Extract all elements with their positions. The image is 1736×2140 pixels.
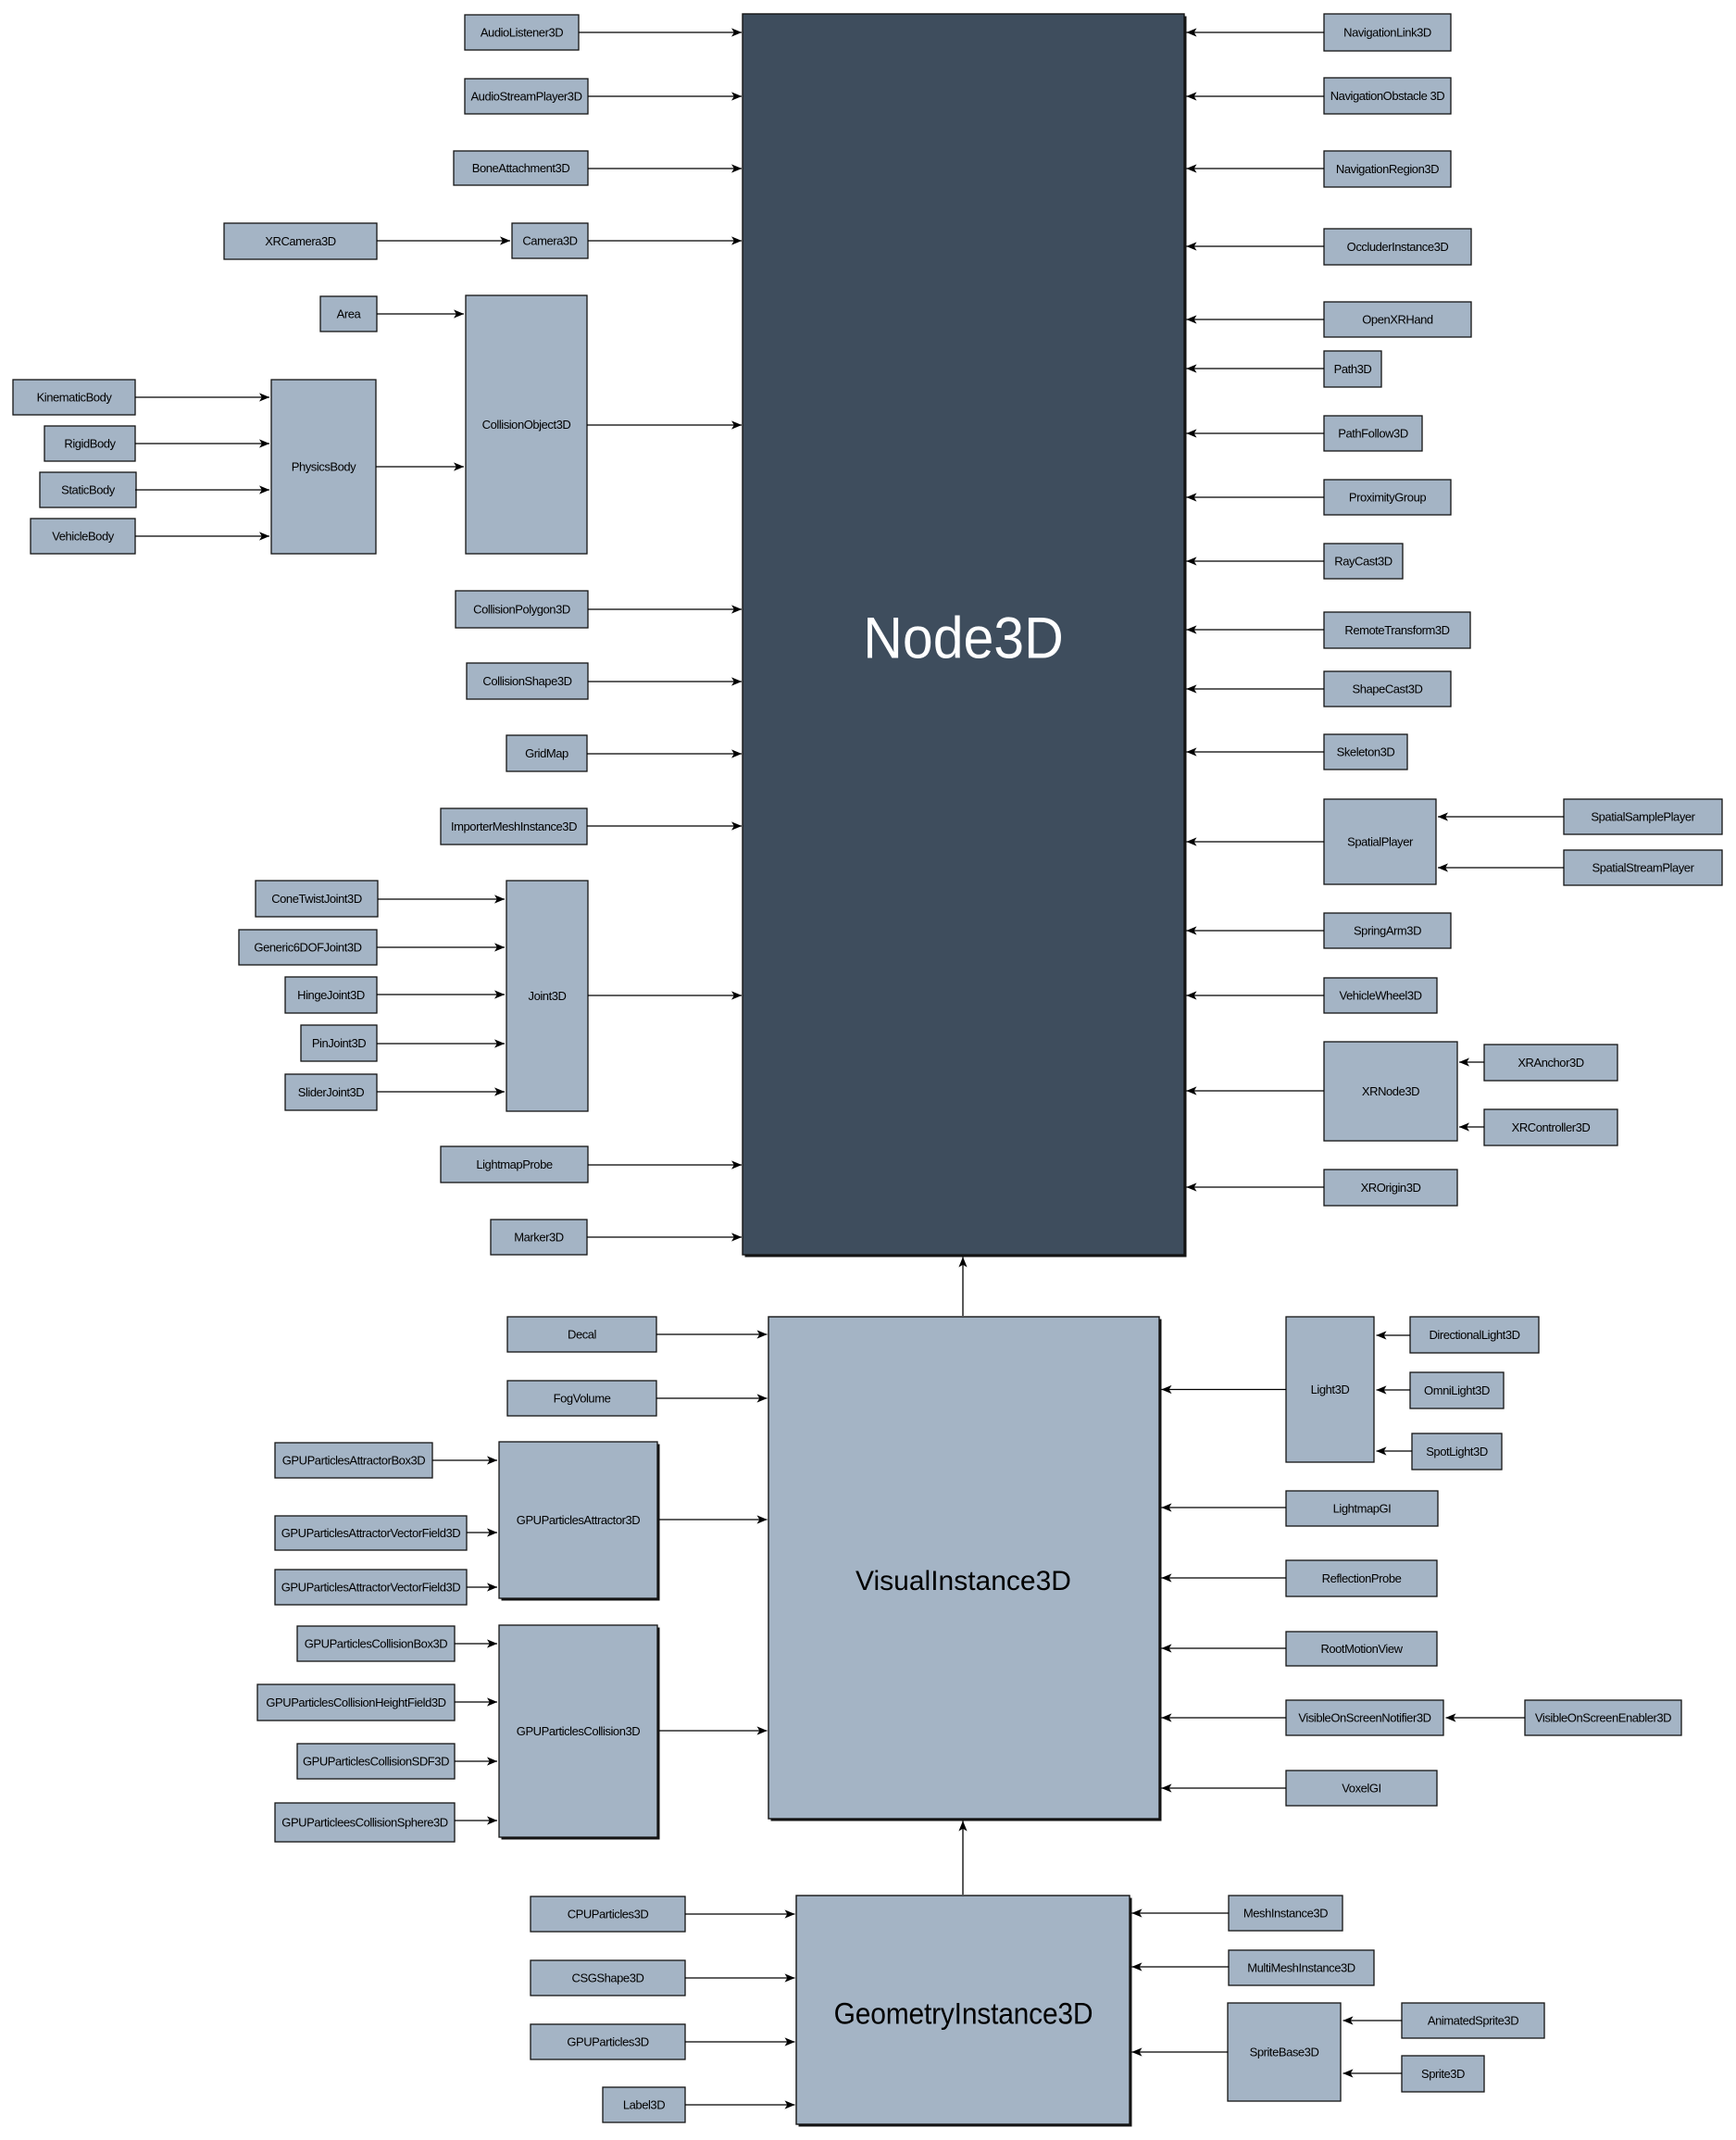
- svg-text:PhysicsBody: PhysicsBody: [292, 460, 356, 474]
- svg-text:AudioListener3D: AudioListener3D: [481, 26, 563, 40]
- svg-text:MeshInstance3D: MeshInstance3D: [1243, 1907, 1328, 1921]
- svg-text:ShapeCast3D: ShapeCast3D: [1353, 682, 1423, 696]
- svg-text:RootMotionView: RootMotionView: [1320, 1642, 1403, 1656]
- svg-text:PinJoint3D: PinJoint3D: [312, 1036, 366, 1050]
- svg-text:RayCast3D: RayCast3D: [1334, 555, 1392, 569]
- svg-text:GPUParticles3D: GPUParticles3D: [567, 2035, 648, 2049]
- svg-text:VehicleBody: VehicleBody: [52, 530, 115, 544]
- svg-text:CollisionPolygon3D: CollisionPolygon3D: [473, 603, 570, 617]
- svg-text:Decal: Decal: [568, 1328, 597, 1342]
- svg-text:XRCamera3D: XRCamera3D: [265, 234, 335, 248]
- svg-text:Camera3D: Camera3D: [522, 234, 577, 248]
- svg-text:SpatialSamplePlayer: SpatialSamplePlayer: [1591, 810, 1695, 824]
- svg-text:GPUParticlesAttractorBox3D: GPUParticlesAttractorBox3D: [282, 1454, 426, 1468]
- svg-text:StaticBody: StaticBody: [61, 483, 116, 497]
- svg-text:ReflectionProbe: ReflectionProbe: [1322, 1571, 1402, 1585]
- svg-text:NavigationObstacle 3D: NavigationObstacle 3D: [1330, 89, 1445, 103]
- svg-text:FogVolume: FogVolume: [554, 1392, 611, 1406]
- svg-text:XRAnchor3D: XRAnchor3D: [1517, 1056, 1583, 1070]
- svg-text:CollisionShape3D: CollisionShape3D: [482, 674, 571, 688]
- svg-text:SpatialStreamPlayer: SpatialStreamPlayer: [1592, 861, 1695, 875]
- svg-text:DirectionalLight3D: DirectionalLight3D: [1429, 1328, 1519, 1342]
- svg-text:XRNode3D: XRNode3D: [1362, 1084, 1419, 1098]
- svg-text:GPUParticlesCollisionBox3D: GPUParticlesCollisionBox3D: [305, 1637, 448, 1651]
- svg-text:XROrigin3D: XROrigin3D: [1361, 1181, 1421, 1195]
- svg-text:RemoteTransform3D: RemoteTransform3D: [1344, 623, 1449, 637]
- svg-text:ImporterMeshInstance3D: ImporterMeshInstance3D: [451, 820, 577, 833]
- svg-text:ConeTwistJoint3D: ConeTwistJoint3D: [271, 892, 362, 906]
- svg-text:Label3D: Label3D: [623, 2098, 665, 2112]
- svg-text:SpatialPlayer: SpatialPlayer: [1347, 835, 1414, 849]
- svg-text:GPUParticlesCollision3D: GPUParticlesCollision3D: [517, 1724, 640, 1738]
- svg-text:NavigationLink3D: NavigationLink3D: [1343, 26, 1431, 40]
- svg-text:Area: Area: [337, 307, 362, 321]
- svg-text:OpenXRHand: OpenXRHand: [1362, 313, 1433, 327]
- svg-text:PathFollow3D: PathFollow3D: [1338, 427, 1408, 441]
- svg-text:VoxelGI: VoxelGI: [1342, 1782, 1380, 1796]
- svg-text:GPUParticlesCollisionHeightFie: GPUParticlesCollisionHeightField3D: [266, 1696, 445, 1709]
- svg-text:VisibleOnScreenEnabler3D: VisibleOnScreenEnabler3D: [1535, 1711, 1671, 1725]
- svg-text:CollisionObject3D: CollisionObject3D: [482, 418, 571, 432]
- svg-text:VehicleWheel3D: VehicleWheel3D: [1339, 989, 1421, 1003]
- svg-text:MultiMeshInstance3D: MultiMeshInstance3D: [1247, 1961, 1355, 1975]
- svg-text:OmniLight3D: OmniLight3D: [1424, 1383, 1490, 1397]
- svg-text:LightmapProbe: LightmapProbe: [476, 1158, 553, 1171]
- svg-text:SpringArm3D: SpringArm3D: [1354, 924, 1421, 938]
- svg-text:OccluderInstance3D: OccluderInstance3D: [1347, 240, 1449, 254]
- svg-text:RigidBody: RigidBody: [64, 437, 116, 451]
- svg-text:Skeleton3D: Skeleton3D: [1337, 745, 1395, 759]
- svg-text:Joint3D: Joint3D: [529, 989, 567, 1003]
- svg-text:HingeJoint3D: HingeJoint3D: [297, 988, 365, 1002]
- svg-text:BoneAttachment3D: BoneAttachment3D: [472, 161, 570, 175]
- svg-text:ProximityGroup: ProximityGroup: [1349, 491, 1426, 505]
- svg-text:GPUParticlesAttractorVectorFie: GPUParticlesAttractorVectorField3D: [281, 1581, 461, 1595]
- svg-text:Generic6DOFJoint3D: Generic6DOFJoint3D: [254, 941, 361, 955]
- svg-text:NavigationRegion3D: NavigationRegion3D: [1336, 162, 1439, 176]
- svg-text:Node3D: Node3D: [863, 606, 1063, 670]
- svg-text:AnimatedSprite3D: AnimatedSprite3D: [1428, 2014, 1518, 2028]
- svg-text:GPUParticlesAttractor3D: GPUParticlesAttractor3D: [517, 1513, 640, 1527]
- svg-text:CSGShape3D: CSGShape3D: [572, 1971, 644, 1985]
- svg-text:Sprite3D: Sprite3D: [1421, 2067, 1465, 2081]
- svg-text:GridMap: GridMap: [525, 746, 568, 760]
- svg-text:SpotLight3D: SpotLight3D: [1426, 1445, 1488, 1458]
- svg-text:VisualInstance3D: VisualInstance3D: [856, 1566, 1071, 1596]
- svg-text:Marker3D: Marker3D: [514, 1231, 564, 1245]
- svg-text:SpriteBase3D: SpriteBase3D: [1250, 2046, 1319, 2059]
- svg-text:KinematicBody: KinematicBody: [37, 391, 113, 405]
- svg-text:LightmapGI: LightmapGI: [1333, 1502, 1392, 1516]
- svg-text:SliderJoint3D: SliderJoint3D: [298, 1085, 365, 1099]
- svg-text:GPUParticlesAttractorVectorFie: GPUParticlesAttractorVectorField3D: [281, 1526, 461, 1540]
- svg-text:XRController3D: XRController3D: [1512, 1120, 1591, 1134]
- svg-text:GeometryInstance3D: GeometryInstance3D: [834, 1996, 1093, 2030]
- svg-text:GPUParticleesCollisionSphere3D: GPUParticleesCollisionSphere3D: [281, 1816, 447, 1830]
- svg-text:CPUParticles3D: CPUParticles3D: [568, 1908, 649, 1921]
- svg-text:AudioStreamPlayer3D: AudioStreamPlayer3D: [470, 90, 581, 104]
- svg-text:Path3D: Path3D: [1334, 362, 1372, 376]
- svg-text:GPUParticlesCollisionSDF3D: GPUParticlesCollisionSDF3D: [303, 1755, 449, 1769]
- svg-text:Light3D: Light3D: [1311, 1383, 1350, 1396]
- svg-text:VisibleOnScreenNotifier3D: VisibleOnScreenNotifier3D: [1298, 1711, 1430, 1725]
